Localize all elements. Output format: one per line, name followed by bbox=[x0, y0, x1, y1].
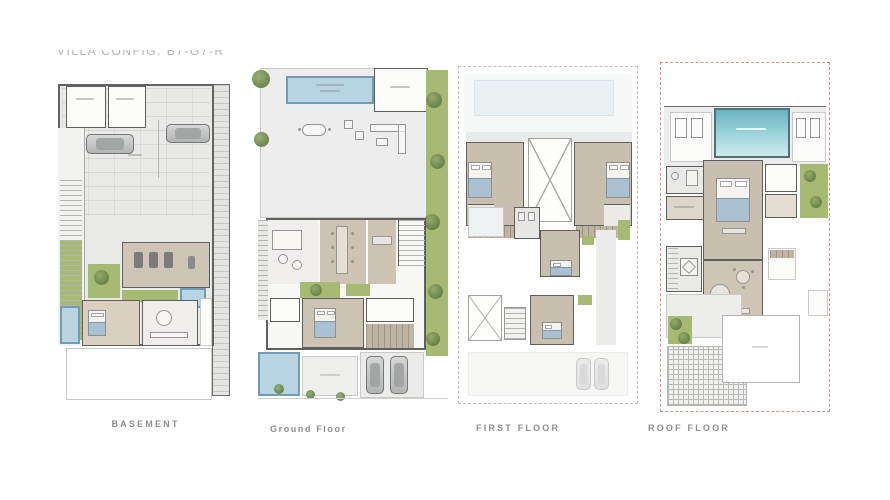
tree-icon bbox=[678, 332, 690, 344]
side-steps bbox=[258, 220, 268, 320]
sun-lounger bbox=[796, 118, 806, 138]
stairs bbox=[398, 220, 425, 266]
plan-ground-floor bbox=[258, 68, 448, 402]
roof-pool bbox=[714, 108, 790, 158]
chair-dot bbox=[331, 232, 334, 235]
tree-icon bbox=[310, 284, 322, 296]
page-title-text: VILLA CONFIG: B7-G7-R bbox=[57, 50, 225, 58]
floorplan-sheet: VILLA CONFIG: B7-G7-R bbox=[0, 0, 890, 500]
chair-dot bbox=[351, 246, 354, 249]
lounge-chair bbox=[344, 120, 353, 129]
text-placeholder bbox=[128, 154, 142, 156]
car-icon bbox=[366, 356, 384, 394]
stairs bbox=[504, 307, 526, 340]
storage-room bbox=[66, 86, 106, 128]
sun-lounger bbox=[675, 118, 687, 138]
bed bbox=[716, 178, 750, 222]
sun-lounger bbox=[691, 118, 703, 138]
plot-boundary bbox=[258, 398, 448, 399]
utility-room bbox=[200, 298, 212, 346]
chair-dot bbox=[742, 286, 745, 289]
tree-icon bbox=[336, 392, 345, 401]
dressing-room bbox=[666, 196, 704, 220]
ghost-car-icon bbox=[594, 358, 609, 390]
terrace bbox=[468, 207, 504, 237]
coffee-table bbox=[376, 138, 388, 146]
water-feature bbox=[60, 306, 80, 344]
armchair bbox=[292, 260, 302, 270]
outdoor-sofa bbox=[398, 124, 406, 154]
bench bbox=[722, 228, 746, 234]
tree-icon bbox=[426, 92, 442, 108]
planter bbox=[582, 236, 594, 245]
car-icon bbox=[86, 134, 134, 154]
bathroom bbox=[666, 166, 704, 194]
chair-dot bbox=[733, 268, 736, 271]
skylight bbox=[680, 258, 698, 276]
ground-floor-label: Ground Floor bbox=[270, 424, 347, 434]
plan-first-floor bbox=[456, 64, 642, 408]
outdoor-dining-table bbox=[302, 124, 326, 136]
bed bbox=[314, 308, 336, 338]
tree-icon bbox=[424, 214, 440, 230]
sofa bbox=[150, 332, 188, 338]
car-icon bbox=[166, 124, 210, 143]
bathroom bbox=[765, 164, 797, 192]
driveway-ramp bbox=[212, 84, 230, 396]
text-placeholder bbox=[116, 98, 134, 100]
open-terrace bbox=[722, 315, 800, 383]
gym-equipment-icon bbox=[149, 252, 158, 268]
ghost-car-icon bbox=[576, 358, 591, 390]
tree-icon bbox=[430, 154, 445, 169]
sun-lounger bbox=[810, 118, 820, 138]
tree-icon bbox=[670, 318, 682, 330]
bathroom bbox=[270, 298, 300, 322]
basement-label: BASEMENT bbox=[58, 419, 233, 429]
kitchen bbox=[368, 220, 396, 284]
ghost-pool bbox=[474, 80, 614, 116]
property-outline bbox=[66, 348, 212, 400]
bed bbox=[550, 260, 572, 276]
gym-equipment-icon bbox=[134, 252, 143, 268]
armchair bbox=[278, 254, 288, 264]
gym-equipment-icon bbox=[188, 256, 195, 269]
wardrobe bbox=[770, 250, 794, 258]
appliance bbox=[528, 212, 535, 221]
text-placeholder bbox=[320, 374, 340, 376]
chair-dot bbox=[331, 246, 334, 249]
bed bbox=[542, 322, 562, 339]
appliance bbox=[518, 212, 525, 221]
bed bbox=[606, 162, 630, 198]
plan-roof-floor bbox=[658, 60, 834, 414]
lounge-chair bbox=[355, 131, 364, 140]
interior-garden bbox=[346, 284, 370, 296]
text-placeholder bbox=[316, 84, 344, 86]
text-placeholder bbox=[674, 206, 694, 208]
planter bbox=[578, 295, 592, 305]
gym-equipment-icon bbox=[164, 252, 173, 268]
wardrobe bbox=[366, 324, 414, 348]
stairs bbox=[668, 248, 678, 290]
chair-dot bbox=[298, 128, 301, 131]
chair-dot bbox=[351, 232, 354, 235]
maid-room bbox=[108, 86, 146, 128]
rug bbox=[272, 230, 302, 250]
planter bbox=[618, 220, 630, 240]
bathroom bbox=[366, 298, 414, 322]
side-balcony bbox=[596, 230, 616, 345]
page-title: VILLA CONFIG: B7-G7-R bbox=[57, 50, 277, 58]
tree-icon bbox=[810, 196, 822, 208]
chair-dot bbox=[328, 128, 331, 131]
double-height-void bbox=[468, 295, 502, 341]
tree-icon bbox=[254, 132, 269, 147]
chair-dot bbox=[351, 260, 354, 263]
tree-icon bbox=[94, 270, 109, 285]
car-icon bbox=[390, 356, 408, 394]
roof-floor-label: ROOF FLOOR bbox=[648, 423, 730, 433]
service-room bbox=[808, 290, 828, 316]
chair-dot bbox=[331, 260, 334, 263]
table bbox=[156, 310, 172, 326]
text-placeholder bbox=[736, 128, 766, 130]
tree-icon bbox=[804, 170, 816, 182]
text-placeholder bbox=[76, 98, 94, 100]
pool-pavilion bbox=[374, 68, 428, 112]
text-placeholder bbox=[390, 86, 410, 88]
tree-icon bbox=[252, 70, 270, 88]
plan-basement bbox=[58, 84, 233, 414]
text-placeholder bbox=[752, 346, 768, 348]
tree-icon bbox=[426, 332, 440, 346]
tree-icon bbox=[274, 384, 284, 394]
dining-table bbox=[736, 270, 750, 284]
dressing-room bbox=[765, 194, 797, 218]
kitchen-island bbox=[372, 236, 392, 245]
side-garden bbox=[426, 70, 448, 356]
stairs bbox=[60, 180, 82, 238]
bed bbox=[468, 162, 492, 198]
chair-dot bbox=[751, 270, 754, 273]
bed bbox=[88, 310, 106, 336]
text-placeholder bbox=[320, 90, 340, 92]
tree-icon bbox=[428, 284, 443, 299]
first-floor-label: FIRST FLOOR bbox=[476, 423, 560, 433]
parking-divider bbox=[158, 120, 159, 178]
shower bbox=[686, 170, 698, 186]
sink bbox=[671, 172, 679, 180]
dining-table bbox=[336, 226, 348, 274]
